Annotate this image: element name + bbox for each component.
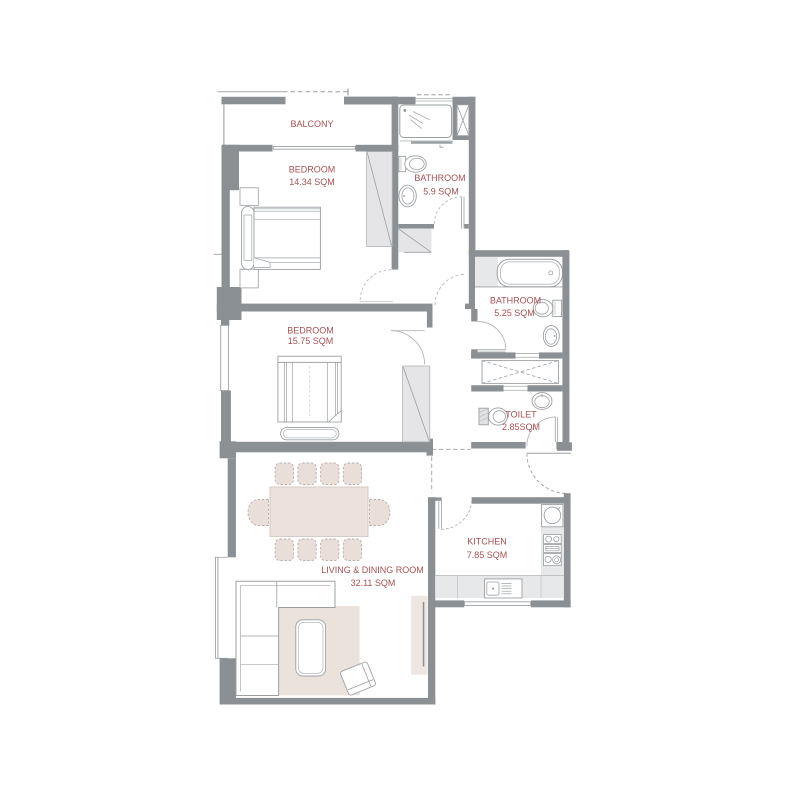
svg-text:BEDROOM: BEDROOM: [289, 164, 336, 174]
svg-text:2.85SQM: 2.85SQM: [502, 422, 540, 432]
svg-text:5.25 SQM: 5.25 SQM: [494, 308, 535, 318]
svg-text:15.75 SQM: 15.75 SQM: [288, 336, 334, 346]
svg-text:TOILET: TOILET: [505, 410, 537, 420]
svg-text:BEDROOM: BEDROOM: [287, 325, 334, 335]
svg-text:KITCHEN: KITCHEN: [467, 537, 507, 547]
svg-text:LIVING & DINING ROOM: LIVING & DINING ROOM: [321, 565, 424, 575]
svg-text:7.85 SQM: 7.85 SQM: [467, 550, 508, 560]
svg-text:32.11 SQM: 32.11 SQM: [351, 578, 396, 588]
svg-text:BATHROOM: BATHROOM: [490, 296, 541, 306]
svg-text:BALCONY: BALCONY: [290, 119, 333, 129]
svg-text:BATHROOM: BATHROOM: [414, 173, 465, 183]
svg-text:14.34 SQM: 14.34 SQM: [289, 177, 335, 187]
svg-text:5.9 SQM: 5.9 SQM: [423, 187, 459, 197]
